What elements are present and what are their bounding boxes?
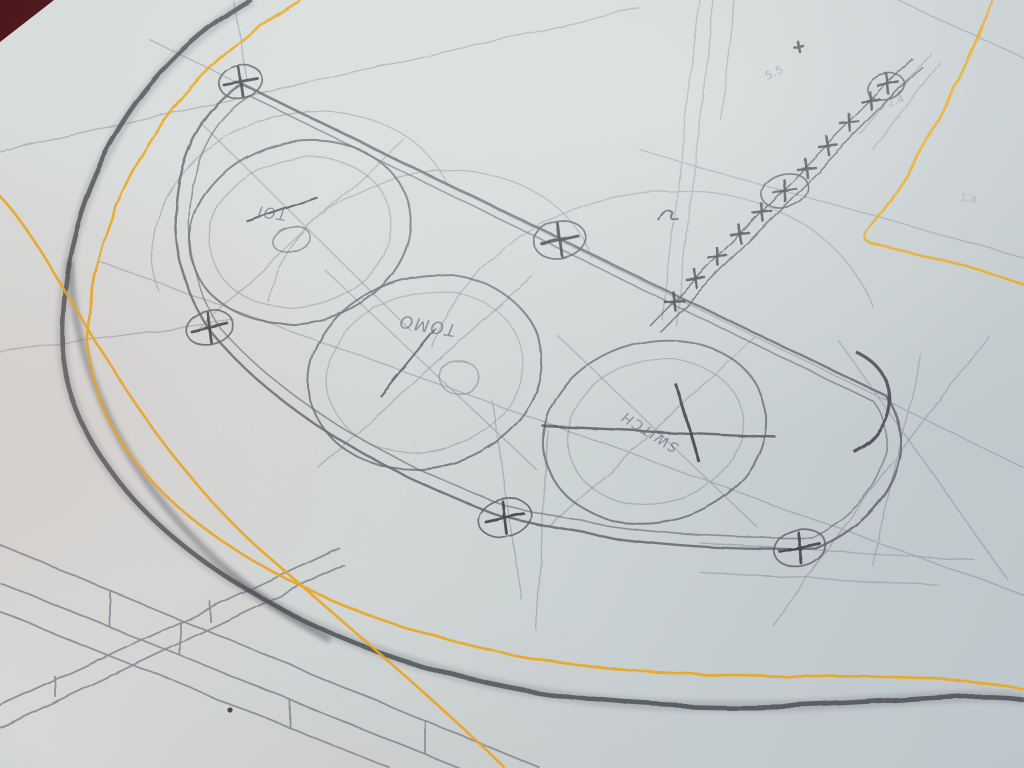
grain-overlay bbox=[0, 0, 1024, 768]
photo-of-pencil-draft: TOI TOMO SWITCH 5.5 2.4 1.4 bbox=[0, 0, 1024, 768]
pencil-drawing: TOI TOMO SWITCH 5.5 2.4 1.4 bbox=[0, 0, 1024, 768]
